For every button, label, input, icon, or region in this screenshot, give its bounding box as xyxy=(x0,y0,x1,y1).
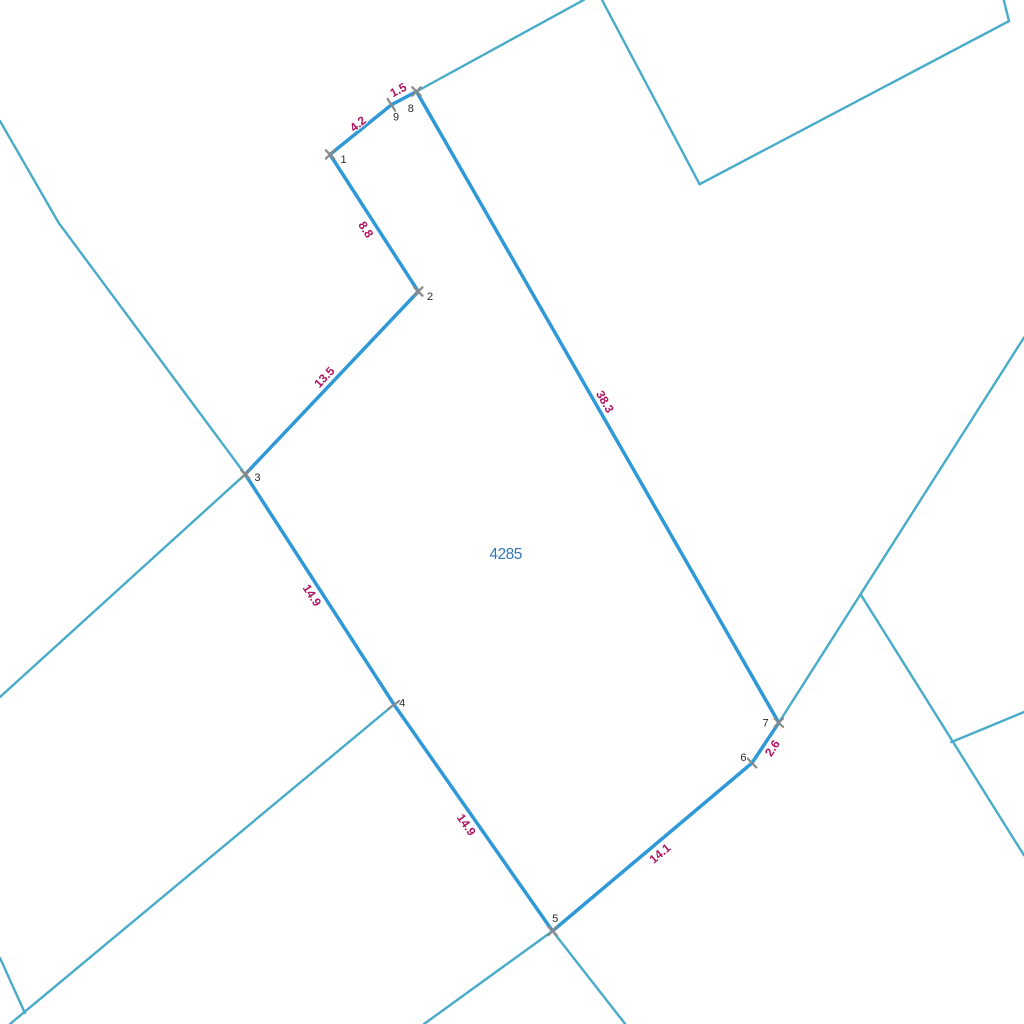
svg-text:1: 1 xyxy=(341,154,347,166)
svg-text:3: 3 xyxy=(254,472,260,484)
svg-text:5: 5 xyxy=(552,913,558,925)
svg-text:6: 6 xyxy=(740,752,746,764)
svg-text:8: 8 xyxy=(408,103,414,115)
svg-text:4285: 4285 xyxy=(489,546,521,563)
svg-text:4: 4 xyxy=(399,697,405,709)
svg-text:7: 7 xyxy=(762,718,768,730)
svg-text:9: 9 xyxy=(393,111,399,123)
svg-text:2: 2 xyxy=(427,291,433,303)
